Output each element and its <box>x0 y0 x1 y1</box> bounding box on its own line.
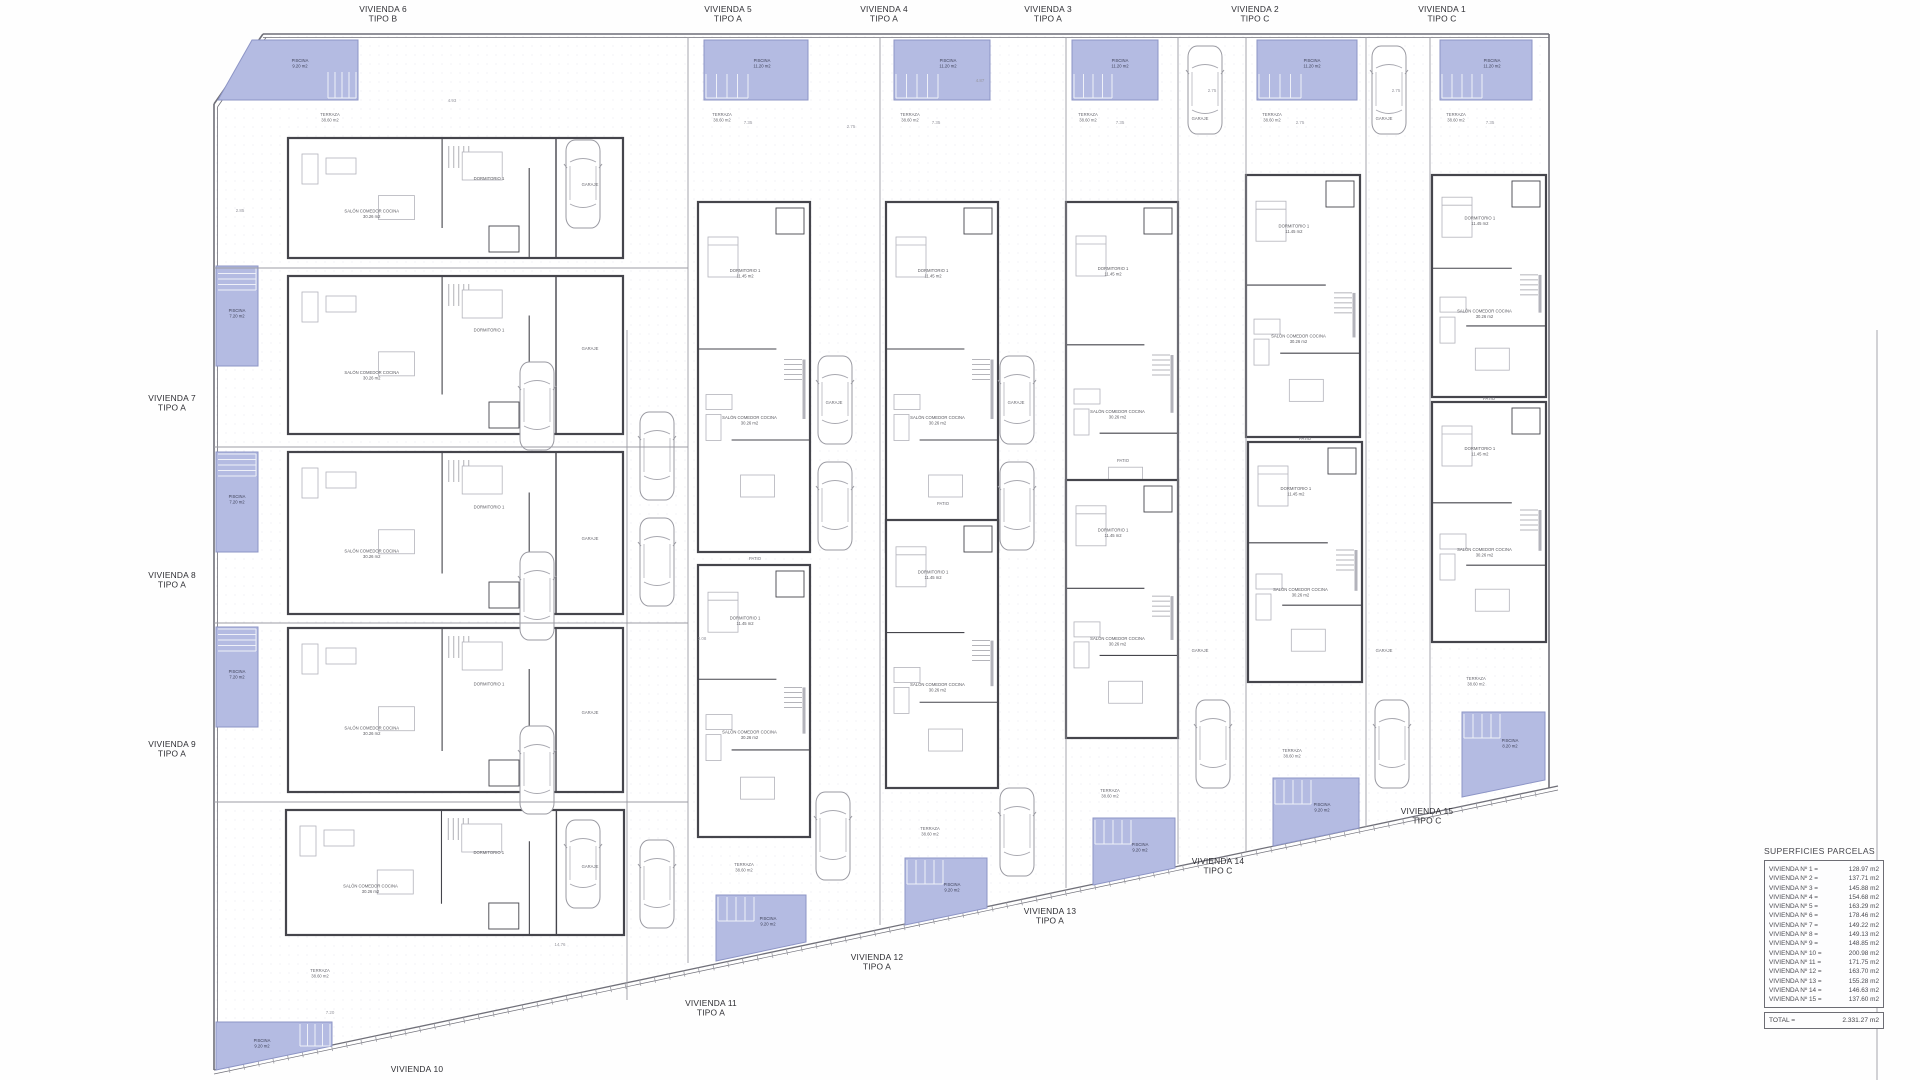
room-label-dormitorio: DORMITORIO 1 <box>1465 215 1496 220</box>
boundary-hatch-tick <box>566 996 567 1002</box>
dimension-label: 7.35 <box>744 120 753 125</box>
parcel-area-value: 200.98 m2 <box>1849 949 1879 958</box>
pool-label: PISCINA <box>254 1038 271 1043</box>
boundary-hatch-tick <box>874 930 875 936</box>
areas-table: SUPERFICIES PARCELAS VIVIENDA Nº 1 =128.… <box>1764 846 1884 1029</box>
room-area-label: 11.45 m2 <box>924 575 942 580</box>
room-label-dormitorio: DORMITORIO 1 <box>1098 266 1129 271</box>
room-label-garaje: GARAJE <box>1376 116 1393 121</box>
areas-table-row: VIVIENDA Nº 6 =178.46 m2 <box>1769 911 1879 920</box>
sofa <box>302 292 318 322</box>
sofa <box>1440 317 1455 343</box>
parcel-label: VIVIENDA Nº 9 = <box>1769 939 1818 948</box>
boundary-hatch-tick <box>581 992 582 998</box>
boundary-hatch-tick <box>1344 831 1345 837</box>
room-label-salon: SALÓN COMEDOR COCINA <box>344 726 399 731</box>
boundary-hatch-tick <box>1256 850 1257 856</box>
boundary-hatch-tick <box>508 1008 509 1014</box>
pool <box>894 40 990 100</box>
dimension-label: 3.08 <box>698 636 707 641</box>
sofa <box>1074 622 1100 637</box>
boundary-hatch-tick <box>654 977 655 983</box>
dimension-label: 2.85 <box>236 208 245 213</box>
car-icon <box>998 788 1036 876</box>
room-area-label: 30.26 m2 <box>362 889 380 894</box>
sofa <box>706 415 721 441</box>
pool-area-label: 7.20 m2 <box>229 314 245 319</box>
boundary-hatch-tick <box>361 1039 362 1045</box>
car-icon <box>518 362 556 450</box>
dimension-label: 7.20 <box>326 1010 335 1015</box>
parcel-label: VIVIENDA Nº 13 = <box>1769 977 1822 986</box>
boundary-hatch-tick <box>1021 899 1022 905</box>
vivienda-tipo-label: TIPO A <box>1034 14 1062 24</box>
areas-total-label: TOTAL = <box>1769 1015 1795 1026</box>
pool-label: PISCINA <box>1484 58 1501 63</box>
boundary-hatch-tick <box>992 906 993 912</box>
room-label-dormitorio: DORMITORIO 1 <box>474 681 505 686</box>
boundary-hatch-tick <box>405 1030 406 1036</box>
boundary-hatch-tick <box>449 1020 450 1026</box>
boundary-hatch-tick <box>757 955 758 961</box>
areas-table-row: VIVIENDA Nº 15 =137.60 m2 <box>1769 995 1879 1004</box>
room-label-garaje: GARAJE <box>582 536 599 541</box>
room-label-garaje: GARAJE <box>582 864 599 869</box>
sofa <box>302 468 318 498</box>
boundary-hatch-tick <box>625 983 626 989</box>
pool-area-label: 11.20 m2 <box>753 64 771 69</box>
site-plan-drawing: PISCINA9.20 m2PISCINA11.20 m2PISCINA11.2… <box>0 0 1920 1080</box>
sofa <box>326 158 356 174</box>
areas-table-row: VIVIENDA Nº 4 =154.68 m2 <box>1769 893 1879 902</box>
room-label-terraza: TERRAZA <box>1100 788 1120 793</box>
areas-total-value: 2.331.27 m2 <box>1842 1015 1879 1026</box>
sofa <box>1074 642 1089 668</box>
pool <box>716 895 806 961</box>
car-icon <box>518 726 556 814</box>
boundary-hatch-tick <box>830 940 831 946</box>
boundary-hatch-tick <box>1285 844 1286 850</box>
boundary-hatch-tick <box>537 1002 538 1008</box>
parcel-area-value: 149.22 m2 <box>1849 921 1879 930</box>
boundary-hatch-tick <box>845 937 846 943</box>
room-label-salon: SALÓN COMEDOR COCINA <box>1457 309 1512 314</box>
parcel-label: VIVIENDA Nº 10 = <box>1769 949 1822 958</box>
boundary-hatch-tick <box>419 1027 420 1033</box>
boundary-hatch-tick <box>1388 822 1389 828</box>
vivienda-label: VIVIENDA 5 <box>704 4 752 14</box>
pool-label: PISCINA <box>1502 738 1519 743</box>
room-label-salon: SALÓN COMEDOR COCINA <box>1457 547 1512 552</box>
parcel-area-value: 178.46 m2 <box>1849 911 1879 920</box>
dimension-label: 7.35 <box>932 120 941 125</box>
room-area-label: 11.45 m2 <box>1104 533 1122 538</box>
areas-table-rows: VIVIENDA Nº 1 =128.97 m2VIVIENDA Nº 2 =1… <box>1764 860 1884 1008</box>
bed <box>1256 201 1286 241</box>
car-icon <box>1373 700 1411 788</box>
vivienda-label: VIVIENDA 8 <box>148 570 196 580</box>
sofa <box>300 826 316 856</box>
dimension-label: 14.76 <box>555 942 567 947</box>
room-area-label: 30.26 m2 <box>1476 552 1494 557</box>
room-label-salon: SALÓN COMEDOR COCINA <box>1090 636 1145 641</box>
room-area-label: 38.60 m2 <box>1263 118 1281 123</box>
parcel-area-value: 146.63 m2 <box>1849 986 1879 995</box>
pool-area-label: 9.20 m2 <box>292 64 308 69</box>
room-area-label: 11.45 m2 <box>1471 452 1489 457</box>
dining-table <box>929 475 963 497</box>
room-label-salon: SALÓN COMEDOR COCINA <box>1271 333 1326 338</box>
vivienda-label: VIVIENDA 13 <box>1024 906 1077 916</box>
vivienda-tipo-label: TIPO A <box>870 14 898 24</box>
parcel-area-value: 163.70 m2 <box>1849 967 1879 976</box>
vivienda-tipo-label: TIPO C <box>1240 14 1269 24</box>
car-icon <box>998 462 1036 550</box>
room-area-label: 38.60 m2 <box>901 118 919 123</box>
bed <box>462 290 502 318</box>
pool <box>1440 40 1532 100</box>
room-area-label: 38.60 m2 <box>1079 118 1097 123</box>
sofa <box>1074 409 1089 435</box>
vivienda-tipo-label: TIPO A <box>158 580 186 590</box>
areas-table-row: VIVIENDA Nº 9 =148.85 m2 <box>1769 939 1879 948</box>
dining-table <box>377 870 413 894</box>
dining-table <box>1291 629 1325 651</box>
room-area-label: 38.60 m2 <box>735 868 753 873</box>
room-label-salon: SALÓN COMEDOR COCINA <box>344 370 399 375</box>
bed <box>462 642 502 670</box>
room-area-label: 11.45 m2 <box>1287 492 1305 497</box>
areas-table-row: VIVIENDA Nº 14 =146.63 m2 <box>1769 986 1879 995</box>
sofa <box>1074 389 1100 404</box>
boundary-hatch-tick <box>1476 803 1477 809</box>
pool-area-label: 11.20 m2 <box>939 64 957 69</box>
room-label-salon: SALÓN COMEDOR COCINA <box>910 682 965 687</box>
dining-table <box>929 729 963 751</box>
sofa <box>894 415 909 441</box>
parcel-label: VIVIENDA Nº 6 = <box>1769 911 1818 920</box>
pool-label: PISCINA <box>944 882 961 887</box>
room-label-salon: SALÓN COMEDOR COCINA <box>722 730 777 735</box>
room-label-garaje: GARAJE <box>1376 648 1393 653</box>
pool-area-label: 9.20 m2 <box>944 888 960 893</box>
boundary-hatch-tick <box>1051 893 1052 899</box>
vivienda-label: VIVIENDA 1 <box>1418 4 1466 14</box>
room-label-dormitorio: DORMITORIO 1 <box>1098 528 1129 533</box>
pool-label: PISCINA <box>760 916 777 921</box>
dining-table <box>741 777 775 799</box>
boundary-hatch-tick <box>1491 800 1492 806</box>
room-label-garaje: GARAJE <box>1008 400 1025 405</box>
areas-table-row: VIVIENDA Nº 13 =155.28 m2 <box>1769 977 1879 986</box>
pool-label: PISCINA <box>1314 802 1331 807</box>
parcel-label: VIVIENDA Nº 14 = <box>1769 986 1822 995</box>
room-area-label: 11.45 m2 <box>1285 229 1303 234</box>
room-label-patio: PATIO <box>937 501 950 506</box>
parcel-label: VIVIENDA Nº 3 = <box>1769 884 1818 893</box>
dining-table <box>1475 589 1509 611</box>
bed <box>462 824 502 852</box>
bed <box>708 592 738 632</box>
boundary-hatch-tick <box>786 949 787 955</box>
sofa <box>706 715 732 730</box>
sofa <box>706 395 732 410</box>
parcel-area-value: 163.29 m2 <box>1849 902 1879 911</box>
room-label-dormitorio: DORMITORIO 1 <box>918 268 949 273</box>
room-area-label: 30.26 m2 <box>741 735 759 740</box>
room-area-label: 38.60 m2 <box>921 832 939 837</box>
boundary-hatch-tick <box>434 1023 435 1029</box>
dimension-label: 2.75 <box>1392 88 1401 93</box>
room-area-label: 30.26 m2 <box>363 375 381 380</box>
pool-area-label: 9.20 m2 <box>254 1044 270 1049</box>
sofa <box>326 472 356 488</box>
dimension-label: 2.75 <box>1296 120 1305 125</box>
pool-label: PISCINA <box>754 58 771 63</box>
sofa <box>326 296 356 312</box>
boundary-hatch-tick <box>684 971 685 977</box>
boundary-hatch-tick <box>889 927 890 933</box>
boundary-hatch-tick <box>1080 887 1081 893</box>
car-icon <box>518 552 556 640</box>
room-label-terraza: TERRAZA <box>712 112 732 117</box>
room-area-label: 30.26 m2 <box>1109 641 1127 646</box>
room-label-garaje: GARAJE <box>1192 116 1209 121</box>
room-area-label: 11.45 m2 <box>1471 221 1489 226</box>
room-label-dormitorio: DORMITORIO 1 <box>1281 486 1312 491</box>
dimension-label: 2.75 <box>1208 88 1217 93</box>
boundary-hatch-tick <box>728 961 729 967</box>
pool-area-label: 9.20 m2 <box>760 922 776 927</box>
boundary-hatch-tick <box>610 986 611 992</box>
sofa <box>1254 339 1269 365</box>
room-label-dormitorio: DORMITORIO 1 <box>474 505 505 510</box>
vivienda-label: VIVIENDA 2 <box>1231 4 1279 14</box>
room-area-label: 30.26 m2 <box>1290 339 1308 344</box>
pool-area-label: 7.20 m2 <box>229 500 245 505</box>
parcel-area-value: 128.97 m2 <box>1849 865 1879 874</box>
dimension-label: 7.35 <box>1116 120 1125 125</box>
boundary-hatch-tick <box>1461 806 1462 812</box>
boundary-hatch-tick <box>801 946 802 952</box>
pool-label: PISCINA <box>229 308 246 313</box>
dimension-label: 4.93 <box>448 98 457 103</box>
vivienda-label: VIVIENDA 4 <box>860 4 908 14</box>
room-label-dormitorio: DORMITORIO 1 <box>730 615 761 620</box>
room-area-label: 30.26 m2 <box>363 214 381 219</box>
parcel-label: VIVIENDA Nº 2 = <box>1769 874 1818 883</box>
room-label-dormitorio: DORMITORIO 1 <box>474 176 505 181</box>
parcel-area-value: 149.13 m2 <box>1849 930 1879 939</box>
bed <box>896 547 926 587</box>
pool-area-label: 11.20 m2 <box>1111 64 1129 69</box>
vivienda-tipo-label: TIPO A <box>158 403 186 413</box>
sofa <box>706 735 721 761</box>
sofa <box>324 830 354 846</box>
car-icon <box>638 840 676 928</box>
boundary-hatch-tick <box>860 934 861 940</box>
pool-label: PISCINA <box>229 669 246 674</box>
room-label-terraza: TERRAZA <box>920 826 940 831</box>
room-area-label: 11.45 m2 <box>924 274 942 279</box>
dining-table <box>741 475 775 497</box>
room-label-salon: SALÓN COMEDOR COCINA <box>343 884 398 889</box>
pool-label: PISCINA <box>940 58 957 63</box>
boundary-hatch-tick <box>346 1042 347 1048</box>
dimension-label: 2.75 <box>847 124 856 129</box>
areas-table-row: VIVIENDA Nº 11 =171.75 m2 <box>1769 958 1879 967</box>
room-area-label: 38.60 m2 <box>1283 754 1301 759</box>
dimension-label: 7.35 <box>1486 120 1495 125</box>
room-label-garaje: GARAJE <box>582 346 599 351</box>
pool-area-label: 9.20 m2 <box>1314 808 1330 813</box>
room-label-salon: SALÓN COMEDOR COCINA <box>344 208 399 213</box>
parcel-label: VIVIENDA Nº 1 = <box>1769 865 1818 874</box>
parcel-area-value: 137.60 m2 <box>1849 995 1879 1004</box>
room-area-label: 38.60 m2 <box>321 118 339 123</box>
boundary-hatch-tick <box>1315 837 1316 843</box>
vivienda-label: VIVIENDA 14 <box>1192 856 1245 866</box>
room-area-label: 30.26 m2 <box>741 421 759 426</box>
dining-table <box>1475 348 1509 370</box>
areas-table-row: VIVIENDA Nº 5 =163.29 m2 <box>1769 902 1879 911</box>
boundary-hatch-tick <box>390 1033 391 1039</box>
pool-label: PISCINA <box>1132 842 1149 847</box>
room-area-label: 30.26 m2 <box>929 688 947 693</box>
room-label-dormitorio: DORMITORIO 1 <box>918 570 949 575</box>
boundary-hatch-tick <box>1329 834 1330 840</box>
room-label-salon: SALÓN COMEDOR COCINA <box>1273 587 1328 592</box>
room-area-label: 30.26 m2 <box>1292 592 1310 597</box>
boundary-hatch-tick <box>1535 791 1536 797</box>
boundary-hatch-tick <box>522 1005 523 1011</box>
bed <box>462 466 502 494</box>
boundary-hatch-tick <box>1065 890 1066 896</box>
dimension-label: 4.87 <box>976 78 985 83</box>
room-label-patio: PATIO <box>1299 436 1312 441</box>
pool-area-label: 11.20 m2 <box>1303 64 1321 69</box>
dining-table <box>1289 379 1323 401</box>
sofa <box>894 687 909 713</box>
vivienda-tipo-label: TIPO B <box>369 14 398 24</box>
areas-table-row: VIVIENDA Nº 7 =149.22 m2 <box>1769 921 1879 930</box>
room-label-terraza: TERRAZA <box>900 112 920 117</box>
boundary-hatch-tick <box>1373 825 1374 831</box>
sofa <box>894 667 920 682</box>
areas-table-row: VIVIENDA Nº 10 =200.98 m2 <box>1769 949 1879 958</box>
sofa <box>302 644 318 674</box>
vivienda-label: VIVIENDA 6 <box>359 4 407 14</box>
parcel-area-value: 148.85 m2 <box>1849 939 1879 948</box>
parcel-area-value: 145.88 m2 <box>1849 884 1879 893</box>
room-label-terraza: TERRAZA <box>1282 748 1302 753</box>
areas-table-row: VIVIENDA Nº 12 =163.70 m2 <box>1769 967 1879 976</box>
boundary-hatch-tick <box>1183 865 1184 871</box>
room-area-label: 38.60 m2 <box>1447 118 1465 123</box>
boundary-hatch-tick <box>1520 794 1521 800</box>
vivienda-tipo-label: TIPO C <box>1203 866 1232 876</box>
pool <box>704 40 808 100</box>
boundary-hatch-tick <box>1403 819 1404 825</box>
parcel-label: VIVIENDA Nº 15 = <box>1769 995 1822 1004</box>
sofa <box>894 395 920 410</box>
sofa <box>1440 554 1455 580</box>
boundary-hatch-tick <box>1036 896 1037 902</box>
pool-label: PISCINA <box>292 58 309 63</box>
pool-label: PISCINA <box>1304 58 1321 63</box>
room-label-terraza: TERRAZA <box>1446 112 1466 117</box>
room-area-label: 30.26 m2 <box>1109 414 1127 419</box>
vivienda-label: VIVIENDA 11 <box>685 998 737 1008</box>
room-label-dormitorio: DORMITORIO 1 <box>1279 223 1310 228</box>
parcel-label: VIVIENDA Nº 7 = <box>1769 921 1818 930</box>
room-label-terraza: TERRAZA <box>310 968 330 973</box>
vivienda-tipo-label: TIPO A <box>863 962 891 972</box>
vivienda-tipo-label: TIPO A <box>1036 916 1064 926</box>
parcel-area-value: 155.28 m2 <box>1849 977 1879 986</box>
pool-area-label: 7.20 m2 <box>229 675 245 680</box>
boundary-hatch-tick <box>596 989 597 995</box>
room-label-patio: PATIO <box>749 556 762 561</box>
vivienda-label: VIVIENDA 7 <box>148 393 196 403</box>
room-label-garaje: GARAJE <box>826 400 843 405</box>
room-area-label: 11.45 m2 <box>736 621 754 626</box>
room-area-label: 30.26 m2 <box>929 421 947 426</box>
parcel-label: VIVIENDA Nº 12 = <box>1769 967 1822 976</box>
parcel-label: VIVIENDA Nº 4 = <box>1769 893 1818 902</box>
boundary-hatch-tick <box>1359 828 1360 834</box>
boundary-hatch-tick <box>375 1036 376 1042</box>
sofa <box>1256 594 1271 620</box>
boundary-hatch-tick <box>1300 841 1301 847</box>
boundary-hatch-tick <box>463 1017 464 1023</box>
boundary-hatch-tick <box>478 1014 479 1020</box>
room-area-label: 30.26 m2 <box>363 554 381 559</box>
room-label-dormitorio: DORMITORIO 1 <box>474 327 505 332</box>
boundary-hatch-tick <box>1271 847 1272 853</box>
parcel-label: VIVIENDA Nº 8 = <box>1769 930 1818 939</box>
room-area-label: 30.26 m2 <box>1476 314 1494 319</box>
vivienda-label: VIVIENDA 9 <box>148 739 196 749</box>
vivienda-tipo-label: TIPO A <box>158 749 186 759</box>
floor-plan-sheet: PISCINA9.20 m2PISCINA11.20 m2PISCINA11.2… <box>0 0 1920 1080</box>
room-label-salon: SALÓN COMEDOR COCINA <box>344 548 399 553</box>
pool <box>1072 40 1158 100</box>
room-label-garaje: GARAJE <box>1192 648 1209 653</box>
room-label-patio: PATIO <box>1117 458 1130 463</box>
areas-table-row: VIVIENDA Nº 1 =128.97 m2 <box>1769 865 1879 874</box>
pool-area-label: 9.20 m2 <box>1132 848 1148 853</box>
vivienda-tipo-label: TIPO A <box>697 1008 725 1018</box>
boundary-hatch-tick <box>493 1011 494 1017</box>
vivienda-label: VIVIENDA 3 <box>1024 4 1072 14</box>
pool <box>218 40 358 100</box>
vivienda-tipo-label: TIPO C <box>1412 816 1441 826</box>
room-area-label: 11.45 m2 <box>736 274 754 279</box>
pool-area-label: 8.20 m2 <box>1502 744 1518 749</box>
bed <box>1076 506 1106 546</box>
pool-label: PISCINA <box>229 494 246 499</box>
dining-table <box>1109 681 1143 703</box>
areas-table-row: VIVIENDA Nº 3 =145.88 m2 <box>1769 884 1879 893</box>
room-label-garaje: GARAJE <box>582 182 599 187</box>
boundary-hatch-tick <box>713 965 714 971</box>
car-icon <box>1194 700 1232 788</box>
areas-table-row: VIVIENDA Nº 2 =137.71 m2 <box>1769 874 1879 883</box>
parcel-label: VIVIENDA Nº 11 = <box>1769 958 1821 967</box>
car-icon <box>638 518 676 606</box>
room-area-label: 11.45 m2 <box>1104 272 1122 277</box>
